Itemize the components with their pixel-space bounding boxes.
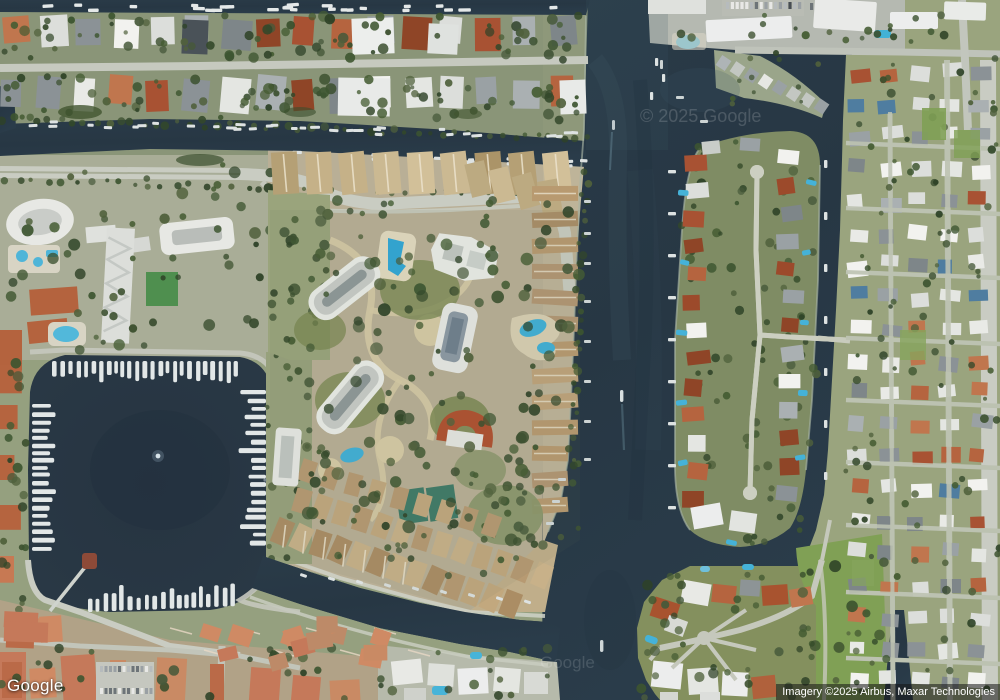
- svg-text:© 2025 Google: © 2025 Google: [640, 106, 761, 126]
- svg-text:Google: Google: [540, 653, 595, 672]
